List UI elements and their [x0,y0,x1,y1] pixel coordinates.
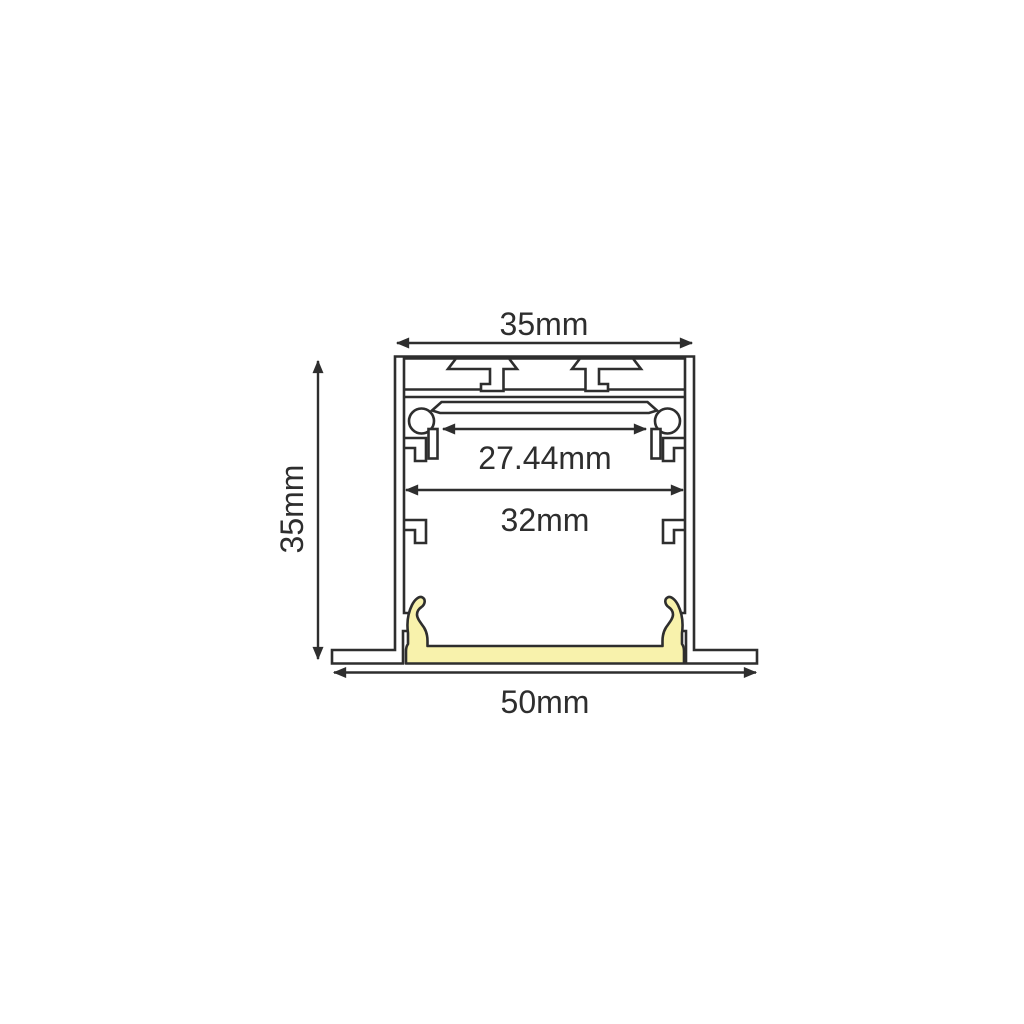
wall-hook-upper-right [663,438,685,461]
profile-cross-section-diagram: 35mm 35mm 27.44mm 32mm 50mm [0,0,1024,1024]
diffuser [406,597,684,663]
spring-clip-stem-left [429,429,438,459]
t-slot-strut-right [572,359,641,392]
dim-label-inner-width: 32mm [501,502,590,538]
wall-hook-upper-left [404,438,426,461]
drawing-canvas: 35mm 35mm 27.44mm 32mm 50mm [0,0,1024,1024]
wall-hook-lower-left [404,520,426,543]
t-slot-strut-left [448,359,517,392]
spring-clip-bar [432,402,657,413]
dim-label-top-width: 35mm [500,306,589,342]
dim-label-overall-width: 50mm [501,684,590,720]
spring-clip-stem-right [652,429,661,459]
dim-label-clip-inner-width: 27.44mm [478,440,611,476]
top-chamber-plate-lines [404,390,685,398]
wall-hook-lower-right [663,520,685,543]
dim-label-height: 35mm [274,465,310,554]
